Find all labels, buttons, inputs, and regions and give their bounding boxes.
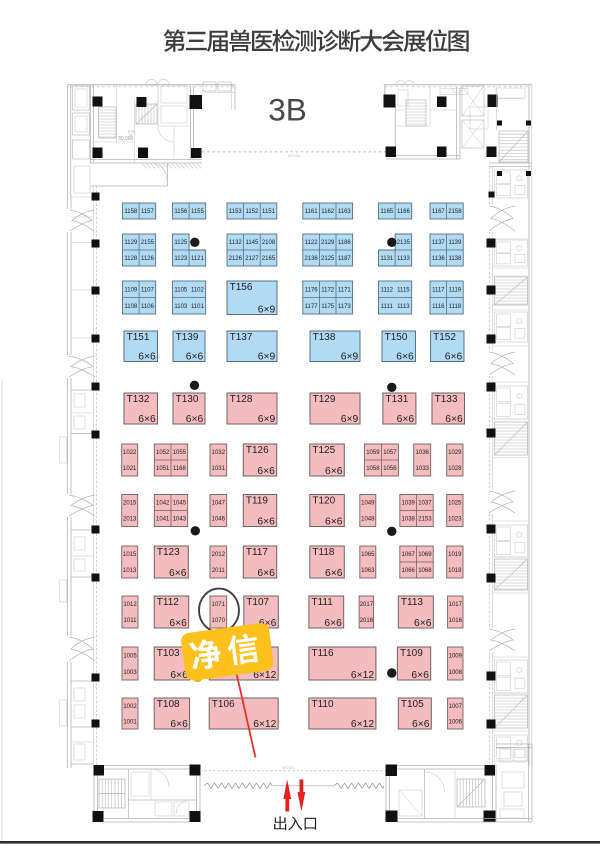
svg-text:6×12: 6×12 <box>351 719 374 730</box>
svg-text:1138: 1138 <box>448 256 462 262</box>
svg-text:T120: T120 <box>312 496 335 507</box>
svg-text:1051: 1051 <box>156 466 170 472</box>
svg-text:1011: 1011 <box>124 618 138 624</box>
svg-text:2125: 2125 <box>321 256 335 262</box>
svg-text:1029: 1029 <box>448 450 462 456</box>
svg-text:1067: 1067 <box>402 552 416 558</box>
svg-text:T108: T108 <box>157 699 180 710</box>
svg-text:6×9: 6×9 <box>258 305 276 316</box>
svg-text:1105: 1105 <box>174 287 188 293</box>
svg-text:1017: 1017 <box>449 602 463 608</box>
svg-text:6×6: 6×6 <box>324 618 342 629</box>
svg-text:T111: T111 <box>312 597 334 608</box>
svg-text:6×6: 6×6 <box>396 352 414 363</box>
svg-text:1176: 1176 <box>305 287 319 293</box>
svg-text:1153: 1153 <box>229 209 243 215</box>
svg-text:6×9: 6×9 <box>258 352 276 363</box>
svg-text:1172: 1172 <box>321 287 335 293</box>
svg-text:1112: 1112 <box>381 287 394 293</box>
svg-text:2135: 2135 <box>397 240 411 246</box>
svg-text:1042: 1042 <box>156 501 170 507</box>
svg-text:1165: 1165 <box>380 209 394 215</box>
svg-text:6×6: 6×6 <box>414 618 432 629</box>
svg-text:6×6: 6×6 <box>170 719 188 730</box>
svg-text:2011: 2011 <box>212 568 226 574</box>
svg-text:1008: 1008 <box>449 670 463 676</box>
svg-text:1162: 1162 <box>321 209 335 215</box>
svg-text:MTC401: MTC401 <box>282 766 294 770</box>
svg-text:6×6: 6×6 <box>138 414 156 425</box>
svg-text:1023: 1023 <box>448 517 462 523</box>
svg-text:1118: 1118 <box>449 304 462 310</box>
svg-text:T105: T105 <box>401 699 424 710</box>
svg-text:1065: 1065 <box>361 552 375 558</box>
svg-text:6×12: 6×12 <box>351 670 374 681</box>
svg-text:1115: 1115 <box>397 287 410 293</box>
svg-text:T119: T119 <box>246 496 268 507</box>
svg-text:T106: T106 <box>212 699 235 710</box>
svg-text:1163: 1163 <box>338 209 352 215</box>
svg-text:1167: 1167 <box>432 209 446 215</box>
svg-text:T132: T132 <box>127 394 150 405</box>
svg-text:1022: 1022 <box>123 450 137 456</box>
svg-text:1103: 1103 <box>174 304 188 310</box>
svg-text:1119: 1119 <box>449 287 462 293</box>
svg-text:6×6: 6×6 <box>257 517 275 528</box>
svg-text:1129: 1129 <box>124 240 138 246</box>
svg-text:1037: 1037 <box>418 501 432 507</box>
svg-text:1038: 1038 <box>402 517 416 523</box>
svg-text:T126: T126 <box>246 445 269 456</box>
svg-text:T109: T109 <box>400 648 423 659</box>
svg-text:T125: T125 <box>312 445 335 456</box>
svg-text:T156: T156 <box>230 282 253 293</box>
svg-text:T138: T138 <box>313 332 336 343</box>
svg-text:2015: 2015 <box>123 501 137 507</box>
svg-text:1028: 1028 <box>448 466 462 472</box>
svg-text:1145: 1145 <box>245 240 259 246</box>
svg-text:1049: 1049 <box>361 501 375 507</box>
svg-text:6×6: 6×6 <box>169 568 187 579</box>
svg-text:3B: 3B <box>268 91 307 127</box>
svg-text:6×6: 6×6 <box>397 414 415 425</box>
svg-text:1106: 1106 <box>141 304 155 310</box>
svg-text:1002: 1002 <box>123 704 137 710</box>
svg-text:1041: 1041 <box>156 517 170 523</box>
svg-text:1186: 1186 <box>338 240 352 246</box>
svg-text:1133: 1133 <box>397 256 411 262</box>
svg-text:1016: 1016 <box>449 618 463 624</box>
svg-text:2016: 2016 <box>360 618 374 624</box>
svg-text:T107: T107 <box>246 597 269 608</box>
svg-text:1132: 1132 <box>229 240 243 246</box>
svg-text:1122: 1122 <box>305 240 319 246</box>
svg-text:6×9: 6×9 <box>341 414 359 425</box>
svg-text:1108: 1108 <box>124 304 138 310</box>
svg-text:2129: 2129 <box>321 240 335 246</box>
svg-text:6×9: 6×9 <box>258 414 276 425</box>
svg-text:6×9: 6×9 <box>341 352 359 363</box>
svg-text:2165: 2165 <box>262 256 276 262</box>
svg-text:1031: 1031 <box>212 466 226 472</box>
svg-text:2012: 2012 <box>212 552 226 558</box>
svg-text:2108: 2108 <box>262 240 276 246</box>
svg-text:1125: 1125 <box>174 240 188 246</box>
svg-text:T151: T151 <box>127 332 150 343</box>
svg-text:1055: 1055 <box>173 450 187 456</box>
svg-text:1043: 1043 <box>173 517 187 523</box>
svg-text:T137: T137 <box>230 332 253 343</box>
svg-text:1121: 1121 <box>191 256 205 262</box>
svg-text:1161: 1161 <box>305 209 319 215</box>
svg-text:2013: 2013 <box>123 517 137 523</box>
svg-text:T130: T130 <box>176 394 199 405</box>
svg-text:T110: T110 <box>312 699 334 710</box>
svg-text:1139: 1139 <box>448 240 462 246</box>
svg-text:1015: 1015 <box>123 552 137 558</box>
svg-text:1113: 1113 <box>397 304 410 310</box>
svg-text:T150: T150 <box>385 332 408 343</box>
svg-text:6×6: 6×6 <box>138 352 156 363</box>
svg-text:1187: 1187 <box>338 256 352 262</box>
svg-text:1021: 1021 <box>123 466 137 472</box>
svg-text:1018: 1018 <box>448 568 462 574</box>
svg-text:2127: 2127 <box>245 256 259 262</box>
svg-text:2126: 2126 <box>229 256 243 262</box>
svg-text:1107: 1107 <box>141 287 155 293</box>
svg-text:T113: T113 <box>401 597 423 608</box>
svg-text:1111: 1111 <box>381 304 394 310</box>
svg-text:1123: 1123 <box>174 256 188 262</box>
svg-text:1007: 1007 <box>449 704 463 710</box>
svg-text:1012: 1012 <box>123 602 137 608</box>
svg-text:1126: 1126 <box>141 256 155 262</box>
svg-text:1177: 1177 <box>305 304 319 310</box>
svg-text:1117: 1117 <box>432 287 445 293</box>
svg-text:2158: 2158 <box>448 209 462 215</box>
svg-text:1052: 1052 <box>156 450 170 456</box>
svg-text:T123: T123 <box>157 547 180 558</box>
svg-text:1158: 1158 <box>124 209 138 215</box>
svg-text:1101: 1101 <box>191 304 205 310</box>
svg-text:1047: 1047 <box>212 501 226 507</box>
svg-text:2136: 2136 <box>304 256 318 262</box>
svg-text:1006: 1006 <box>449 720 463 726</box>
svg-text:1171: 1171 <box>338 287 352 293</box>
svg-text:1173: 1173 <box>338 304 352 310</box>
svg-text:1005: 1005 <box>123 654 137 660</box>
svg-text:1156: 1156 <box>174 209 188 215</box>
svg-text:1001: 1001 <box>123 720 137 726</box>
svg-text:30.000: 30.000 <box>118 136 134 142</box>
svg-text:T152: T152 <box>433 332 456 343</box>
svg-text:6×6: 6×6 <box>445 352 463 363</box>
svg-text:T129: T129 <box>313 394 336 405</box>
svg-text:2017: 2017 <box>360 602 374 608</box>
svg-text:T139: T139 <box>176 332 199 343</box>
svg-text:1046: 1046 <box>212 517 226 523</box>
svg-text:T117: T117 <box>246 547 268 558</box>
svg-text:1068: 1068 <box>418 568 432 574</box>
svg-text:T112: T112 <box>157 597 179 608</box>
svg-text:6×6: 6×6 <box>445 414 463 425</box>
svg-text:1069: 1069 <box>418 552 432 558</box>
svg-text:2153: 2153 <box>418 517 432 523</box>
svg-text:1136: 1136 <box>432 256 446 262</box>
svg-text:1151: 1151 <box>262 209 276 215</box>
svg-text:6×6: 6×6 <box>186 414 204 425</box>
svg-text:1036: 1036 <box>416 450 430 456</box>
svg-text:1128: 1128 <box>124 256 138 262</box>
svg-text:6×6: 6×6 <box>325 517 343 528</box>
svg-text:2155: 2155 <box>141 240 155 246</box>
svg-text:1102: 1102 <box>191 287 205 293</box>
svg-text:6×6: 6×6 <box>257 466 275 477</box>
svg-text:1157: 1157 <box>141 209 155 215</box>
svg-text:6×6: 6×6 <box>412 719 430 730</box>
svg-text:1152: 1152 <box>245 209 259 215</box>
svg-text:6×6: 6×6 <box>257 568 275 579</box>
svg-text:1057: 1057 <box>383 450 397 456</box>
svg-text:1003: 1003 <box>123 670 137 676</box>
svg-text:1071: 1071 <box>212 602 226 608</box>
svg-text:1025: 1025 <box>448 501 462 507</box>
svg-text:1013: 1013 <box>123 568 137 574</box>
svg-text:1175: 1175 <box>321 304 335 310</box>
svg-text:1137: 1137 <box>432 240 446 246</box>
svg-text:T128: T128 <box>230 394 253 405</box>
svg-text:T118: T118 <box>312 547 334 558</box>
svg-text:6×6: 6×6 <box>169 618 187 629</box>
svg-text:1168: 1168 <box>173 466 187 472</box>
svg-text:1116: 1116 <box>432 304 445 310</box>
svg-text:1032: 1032 <box>212 450 226 456</box>
svg-text:1019: 1019 <box>448 552 462 558</box>
svg-text:1033: 1033 <box>416 466 430 472</box>
svg-text:6×12: 6×12 <box>253 719 276 730</box>
svg-text:1045: 1045 <box>173 501 187 507</box>
svg-text:6×6: 6×6 <box>411 670 429 681</box>
svg-text:1058: 1058 <box>366 466 380 472</box>
svg-text:1131: 1131 <box>380 256 394 262</box>
svg-text:1056: 1056 <box>383 466 397 472</box>
svg-text:1066: 1066 <box>402 568 416 574</box>
svg-text:1166: 1166 <box>397 209 411 215</box>
svg-text:T116: T116 <box>312 648 334 659</box>
svg-text:6×6: 6×6 <box>325 466 343 477</box>
svg-text:T131: T131 <box>386 394 409 405</box>
svg-text:1059: 1059 <box>366 450 380 456</box>
svg-text:T133: T133 <box>435 394 458 405</box>
svg-text:1070: 1070 <box>212 618 226 624</box>
svg-text:1009: 1009 <box>449 654 463 660</box>
svg-text:T103: T103 <box>157 648 180 659</box>
svg-text:1155: 1155 <box>191 209 205 215</box>
svg-text:6×6: 6×6 <box>186 352 204 363</box>
svg-text:MTC402: MTC402 <box>288 154 300 158</box>
svg-text:1039: 1039 <box>402 501 416 507</box>
svg-text:1109: 1109 <box>124 287 138 293</box>
svg-text:1048: 1048 <box>361 517 375 523</box>
svg-text:1063: 1063 <box>361 568 375 574</box>
svg-text:6×6: 6×6 <box>325 568 343 579</box>
